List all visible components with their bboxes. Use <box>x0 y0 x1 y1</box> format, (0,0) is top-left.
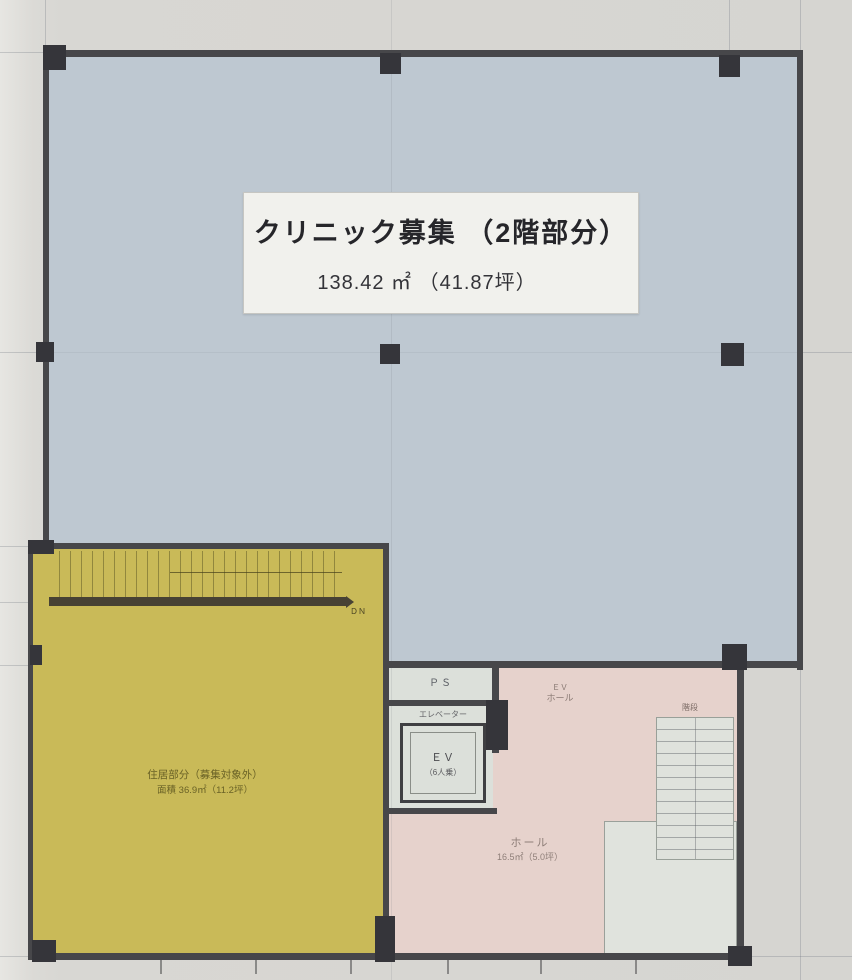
yellow-area-line2: 面積 36.9㎡（11.2坪） <box>105 784 305 798</box>
staircase-edge-arrow <box>49 597 347 606</box>
column <box>375 916 395 962</box>
staircase <box>656 717 734 860</box>
ps-room-label: ＰＳ <box>389 674 493 689</box>
elevator-shaft: ＥＶ （6人乗） <box>400 723 486 803</box>
hall-name: ホール <box>455 836 605 851</box>
survey-tick <box>160 960 162 974</box>
grid-line <box>391 0 392 980</box>
grid-line <box>729 0 730 57</box>
wall-top <box>45 50 803 57</box>
column <box>380 344 400 364</box>
wall-yellow-right <box>383 543 389 960</box>
wall-ev-bottom <box>385 808 497 814</box>
grid-line <box>0 602 30 603</box>
yellow-area-line1: 住居部分（募集対象外） <box>105 768 305 784</box>
elevator-capacity: （6人乗） <box>425 767 461 778</box>
wall-left <box>43 50 49 549</box>
grid-line <box>803 352 852 353</box>
yellow-staircase-hatch <box>49 551 345 597</box>
hall-label: ホール 16.5㎡（5.0坪） <box>455 836 605 864</box>
yellow-area-label: 住居部分（募集対象外） 面積 36.9㎡（11.2坪） <box>105 768 305 798</box>
recruitment-label-box: クリニック募集 （2階部分） 138.42 ㎡ （41.87坪） <box>243 192 639 314</box>
elevator-label: ＥＶ <box>431 749 455 765</box>
survey-tick <box>447 960 449 974</box>
stairs-label: 階段 <box>658 702 722 713</box>
staircase-rail-line <box>170 572 342 573</box>
ev-hall-label: ＥＶ ホール <box>528 683 592 703</box>
grid-line <box>49 352 797 353</box>
stair-direction-label: ＤＮ <box>350 606 366 617</box>
grid-line <box>0 956 30 957</box>
recruitment-area-text: 138.42 ㎡ （41.87坪） <box>317 266 536 295</box>
hall-area-text: 16.5㎡（5.0坪） <box>455 851 605 864</box>
wall-stairtower-right <box>737 661 744 960</box>
grid-line <box>800 668 801 980</box>
wall-yellow-top <box>28 543 388 549</box>
column <box>30 645 42 665</box>
grid-line <box>0 665 30 666</box>
survey-tick <box>635 960 637 974</box>
grid-line <box>800 0 801 52</box>
wall-right <box>797 50 803 670</box>
elevator-car: ＥＶ （6人乗） <box>410 732 476 794</box>
survey-tick <box>350 960 352 974</box>
grid-line <box>0 546 30 547</box>
column <box>719 55 740 77</box>
column <box>486 700 508 750</box>
survey-tick <box>255 960 257 974</box>
survey-tick <box>540 960 542 974</box>
ev-hall-line2: ホール <box>528 693 592 704</box>
grid-line <box>744 956 852 957</box>
column <box>32 940 56 962</box>
grid-line <box>0 52 45 53</box>
column <box>36 342 54 362</box>
column <box>43 45 66 70</box>
column <box>728 946 752 966</box>
elevator-caption: エレベーター <box>395 709 491 720</box>
wall-yellow-left <box>28 543 33 960</box>
yellow-tenant-area <box>33 549 383 957</box>
column <box>721 343 744 366</box>
column <box>722 644 747 670</box>
floor-plan: ＤＮ クリニック募集 （2階部分） 138.42 ㎡ （41.87坪） ＰＳ エ… <box>0 0 852 980</box>
column <box>380 53 401 74</box>
wall-ps-bottom <box>385 700 497 706</box>
recruitment-title: クリニック募集 （2階部分） <box>254 211 629 250</box>
ev-hall-line1: ＥＶ <box>528 683 592 693</box>
